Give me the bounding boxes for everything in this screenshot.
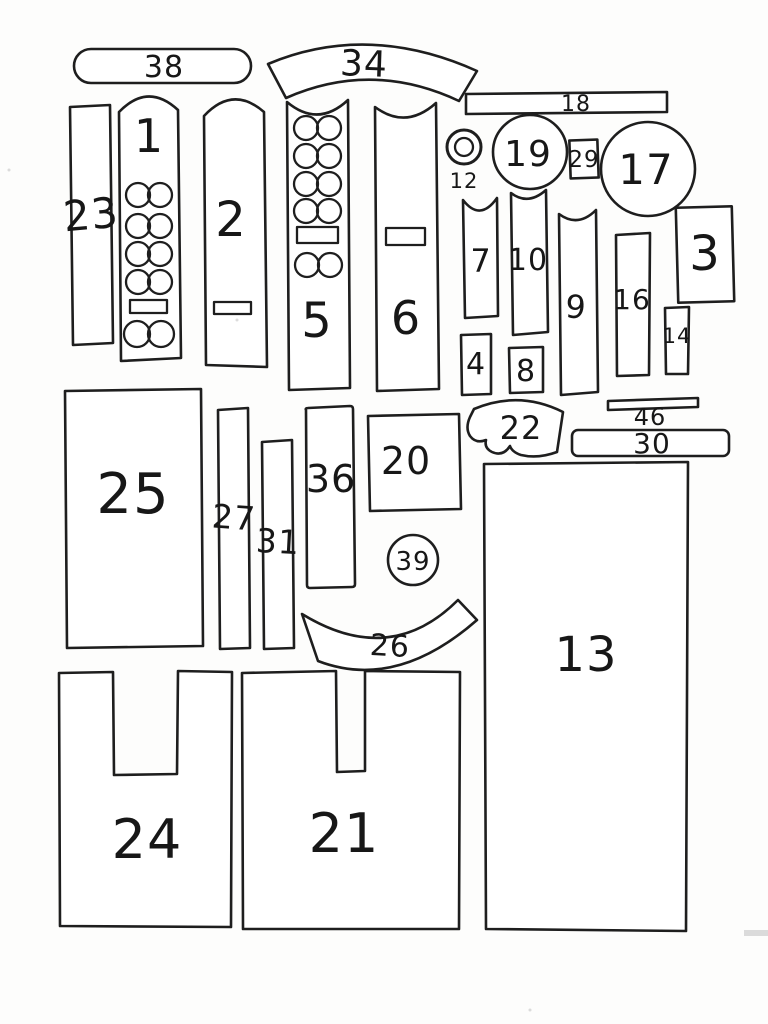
piece-3-label: 3 bbox=[689, 226, 721, 282]
piece-18: 18 bbox=[466, 92, 667, 117]
piece-3: 3 bbox=[676, 206, 734, 302]
piece-14: 14 bbox=[663, 307, 692, 374]
piece-2-label: 2 bbox=[215, 192, 247, 248]
piece-8: 8 bbox=[509, 347, 543, 393]
piece-31-label: 31 bbox=[255, 521, 301, 562]
piece-12-label: 12 bbox=[450, 169, 479, 193]
scan-speck bbox=[236, 319, 239, 322]
piece-2: 2 bbox=[204, 99, 267, 367]
piece-24: 24 bbox=[59, 671, 232, 927]
piece-19: 19 bbox=[493, 115, 567, 189]
pattern-pieces-drawing: 38 23 1 2 34 bbox=[0, 0, 768, 1024]
piece-26: 26 bbox=[302, 600, 477, 670]
piece-5-label: 5 bbox=[301, 293, 333, 349]
piece-24-label: 24 bbox=[112, 808, 183, 871]
piece-16: 16 bbox=[613, 233, 651, 376]
piece-6: 6 bbox=[375, 103, 439, 391]
piece-34-label: 34 bbox=[339, 43, 388, 86]
piece-31: 31 bbox=[255, 440, 301, 649]
piece-29-label: 29 bbox=[568, 147, 599, 173]
piece-20: 20 bbox=[368, 414, 461, 511]
piece-38: 38 bbox=[74, 49, 251, 85]
piece-5: 5 bbox=[287, 100, 350, 390]
piece-20-label: 20 bbox=[381, 439, 431, 483]
piece-39: 39 bbox=[388, 535, 438, 585]
piece-14-label: 14 bbox=[663, 324, 692, 348]
piece-9: 9 bbox=[559, 210, 598, 395]
piece-13-label: 13 bbox=[554, 627, 617, 683]
piece-25: 25 bbox=[65, 389, 203, 648]
piece-18-label: 18 bbox=[561, 92, 591, 117]
piece-36-label: 36 bbox=[306, 457, 356, 501]
piece-1: 1 bbox=[119, 96, 181, 361]
piece-21-label: 21 bbox=[309, 802, 380, 865]
piece-30: 30 bbox=[572, 427, 729, 460]
piece-19-label: 19 bbox=[504, 134, 552, 175]
piece-7: 7 bbox=[463, 198, 498, 318]
piece-10-label: 10 bbox=[508, 243, 548, 278]
piece-16-label: 16 bbox=[613, 283, 651, 316]
scan-smudge bbox=[744, 930, 768, 936]
piece-4-label: 4 bbox=[466, 347, 486, 382]
piece-26-label: 26 bbox=[369, 628, 411, 665]
scanned-pattern-sheet: 38 23 1 2 34 bbox=[0, 0, 768, 1024]
piece-29: 29 bbox=[568, 140, 599, 179]
piece-27-label: 27 bbox=[211, 497, 258, 539]
piece-22-label: 22 bbox=[500, 409, 543, 447]
piece-27: 27 bbox=[211, 408, 258, 649]
piece-23-label: 23 bbox=[61, 188, 121, 242]
piece-36: 36 bbox=[306, 406, 356, 588]
piece-23: 23 bbox=[61, 105, 121, 345]
piece-7-label: 7 bbox=[470, 242, 491, 280]
piece-4: 4 bbox=[461, 334, 491, 395]
piece-21: 21 bbox=[242, 671, 460, 929]
piece-38-label: 38 bbox=[144, 50, 184, 85]
piece-1-label: 1 bbox=[134, 109, 164, 163]
piece-22: 22 bbox=[468, 400, 564, 456]
piece-25-label: 25 bbox=[96, 462, 169, 527]
piece-10: 10 bbox=[508, 190, 548, 335]
piece-17-label: 17 bbox=[618, 145, 673, 194]
piece-9-label: 9 bbox=[564, 287, 588, 326]
scan-speck bbox=[529, 1009, 532, 1012]
scan-speck bbox=[8, 169, 11, 172]
piece-17: 17 bbox=[601, 122, 695, 216]
piece-13: 13 bbox=[484, 462, 688, 931]
piece-34: 34 bbox=[268, 43, 477, 101]
piece-30-label: 30 bbox=[633, 427, 671, 460]
piece-39-label: 39 bbox=[395, 547, 430, 577]
piece-12: 12 bbox=[447, 130, 481, 193]
piece-6-label: 6 bbox=[391, 291, 421, 345]
piece-8-label: 8 bbox=[516, 354, 536, 389]
